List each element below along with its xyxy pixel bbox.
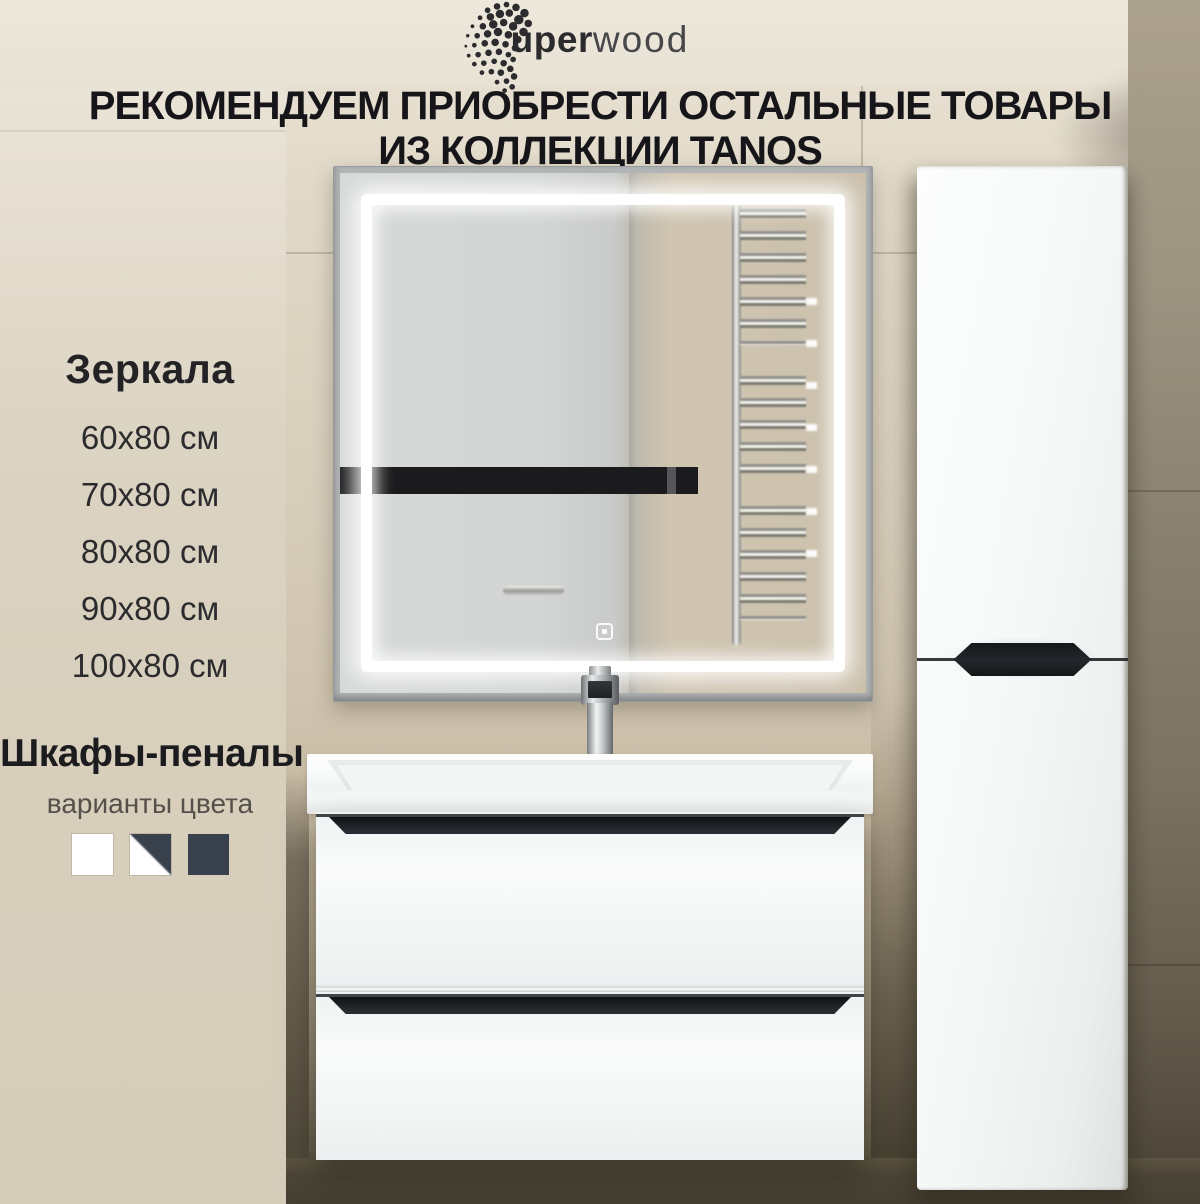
cabinets-title: Шкафы-пеналы — [0, 732, 300, 776]
washbasin — [307, 754, 873, 814]
led-mirror — [333, 166, 873, 702]
mirrors-info-block: Зеркала 60х80 см 70х80 см 80х80 см 90х80… — [0, 346, 300, 694]
top-wall-band — [0, 0, 1200, 86]
promo-heading: РЕКОМЕНДУЕМ ПРИОБРЕСТИ ОСТАЛЬНЫЕ ТОВАРЫ … — [0, 84, 1200, 173]
mirror-size-item: 90х80 см — [0, 580, 300, 637]
vanity-drawer-1 — [316, 812, 864, 986]
vanity-cabinet — [316, 812, 864, 1160]
color-swatch-white-graphite — [130, 834, 171, 875]
drawer-handle-1 — [329, 817, 851, 834]
washbasin-bowl — [327, 760, 853, 790]
drawer-handle-2 — [329, 997, 851, 1014]
color-swatch-graphite — [188, 834, 229, 875]
mirror-led-strip — [361, 194, 845, 672]
tile-seam — [1128, 490, 1200, 492]
tall-cabinet — [917, 166, 1128, 1190]
tall-cabinet-handle — [954, 643, 1092, 676]
mirrors-title: Зеркала — [0, 346, 300, 393]
mirror-size-item: 80х80 см — [0, 523, 300, 580]
mirror-surface — [340, 173, 866, 693]
vanity-drawer-2 — [316, 992, 864, 1160]
faucet-body — [587, 703, 613, 761]
color-swatch-white — [72, 834, 113, 875]
mirror-size-item: 60х80 см — [0, 409, 300, 466]
dark-tile-column — [1128, 0, 1200, 1204]
drawer-handle-line — [316, 814, 864, 817]
mirror-size-item: 100х80 см — [0, 637, 300, 694]
drawer-handle-line — [316, 994, 864, 997]
mirror-sizes-list: 60х80 см 70х80 см 80х80 см 90х80 см 100х… — [0, 409, 300, 694]
cabinets-info-block: Шкафы-пеналы варианты цвета — [0, 732, 300, 875]
wall-shadow-behind-cabinet — [871, 688, 917, 1204]
tile-seam — [1128, 964, 1200, 966]
mirror-size-item: 70х80 см — [0, 466, 300, 523]
faucet-head — [581, 675, 619, 705]
cabinets-subtitle: варианты цвета — [0, 788, 300, 820]
color-swatch-row — [0, 834, 300, 875]
heading-line-1: РЕКОМЕНДУЕМ ПРИОБРЕСТИ ОСТАЛЬНЫЕ ТОВАРЫ — [0, 84, 1200, 128]
